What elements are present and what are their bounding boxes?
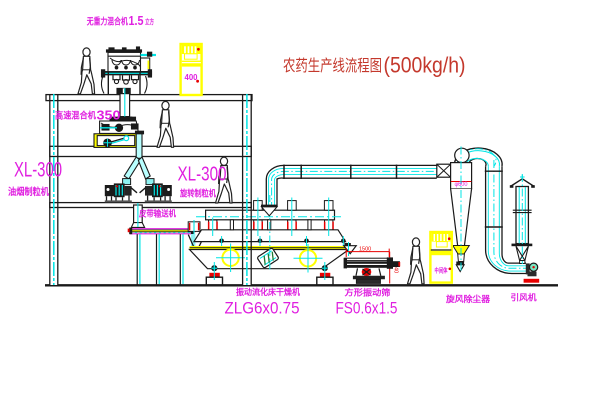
- svg-text:引风机: 引风机: [511, 293, 537, 303]
- svg-text:FS0.6x1.5: FS0.6x1.5: [336, 299, 398, 318]
- svg-text:350: 350: [97, 108, 121, 123]
- svg-text:1.5: 1.5: [129, 13, 144, 28]
- svg-text:农药生产线流程图: 农药生产线流程图: [283, 57, 382, 75]
- svg-text:XL-300: XL-300: [178, 164, 227, 186]
- svg-text:ZLG6x0.75: ZLG6x0.75: [225, 299, 300, 318]
- svg-text:XL-300: XL-300: [14, 159, 62, 182]
- svg-text:皮带输送机: 皮带输送机: [138, 209, 176, 219]
- svg-text:旋转制粒机: 旋转制粒机: [179, 188, 216, 199]
- svg-text:立方: 立方: [145, 17, 154, 26]
- svg-text:中间体: 中间体: [435, 266, 448, 275]
- svg-text:方形振动筛: 方形振动筛: [345, 288, 392, 298]
- svg-text:400: 400: [185, 72, 198, 82]
- svg-text:旋风除尘器: 旋风除尘器: [445, 294, 491, 304]
- svg-text:油烟制粒机: 油烟制粒机: [8, 186, 49, 198]
- svg-text:振动流化床干燥机: 振动流化床干燥机: [236, 287, 300, 297]
- svg-text:无重力混合机: 无重力混合机: [86, 16, 128, 27]
- svg-text:(500kg/h): (500kg/h): [384, 53, 466, 78]
- svg-text:高速混合机: 高速混合机: [55, 110, 96, 121]
- svg-text:1500: 1500: [359, 246, 371, 252]
